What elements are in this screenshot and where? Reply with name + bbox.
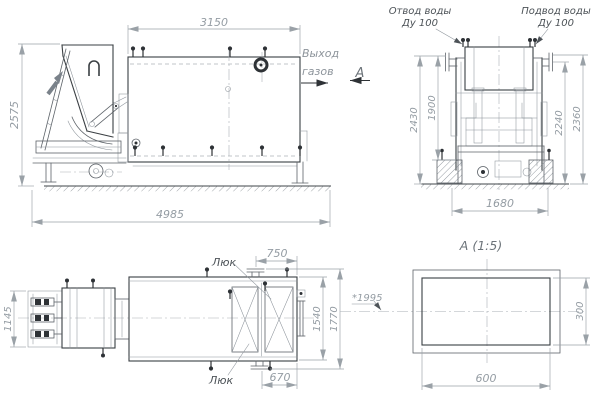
- furnace-assembly-drawing: 3150 2575 4985 Выход газов А: [0, 0, 600, 400]
- dim-1540-text: 1540: [312, 306, 323, 331]
- dim-750-text: 750: [267, 247, 288, 260]
- hatch-cover-left: [232, 287, 258, 352]
- bottom-nozzle-plan: [251, 361, 268, 369]
- water-outlet-callout: Отвод воды Ду 100: [389, 6, 462, 44]
- dim-600-text: 600: [476, 372, 497, 385]
- dim-2430-text: 2430: [409, 107, 420, 132]
- dimension-width-1770: 1770: [266, 269, 344, 369]
- gas-outlet-label-line2: газов: [302, 65, 334, 78]
- tank-bottom-eyebolts: [133, 145, 302, 156]
- hatch-leader-bottom: [228, 344, 249, 375]
- dimension-top-750: 750: [256, 247, 297, 275]
- hopper-symbol: [89, 61, 99, 76]
- ref-1995-text: *1995: [352, 293, 382, 304]
- top-flange-port: [255, 59, 267, 71]
- end-elevation-view: Отвод воды Ду 100 Подвод воды Ду 100 243…: [389, 6, 591, 216]
- dim-2575-text: 2575: [8, 101, 21, 129]
- tank-plan: [129, 267, 305, 370]
- dim-1145-text: 1145: [3, 306, 14, 331]
- side-flange-plan: [297, 290, 305, 336]
- dimension-foundation-1680: 1680: [452, 188, 548, 216]
- top-nozzle-plan: [247, 269, 264, 277]
- side-elevation-view: 3150 2575 4985 Выход газов А: [8, 16, 370, 227]
- technical-drawing-sheet: 3150 2575 4985 Выход газов А: [0, 0, 600, 400]
- dimension-duct-600: 600: [422, 348, 550, 390]
- dim-670-text: 670: [270, 371, 291, 384]
- dimension-overall-length: 4985: [32, 190, 330, 227]
- section-a-title: А (1:5): [459, 238, 502, 253]
- water-inlet-callout: Подвод воды Ду 100: [521, 6, 591, 44]
- tank-body: [128, 50, 300, 170]
- dimension-feeder-1145: 1145: [3, 291, 26, 347]
- view-a-label: А: [355, 66, 365, 81]
- dim-2360-text: 2360: [572, 106, 583, 131]
- dim-1900-text: 1900: [427, 95, 438, 120]
- section-a-view: А (1:5) 600 300: [340, 238, 590, 390]
- dim-300-text: 300: [575, 301, 586, 320]
- dim-4985-text: 4985: [156, 208, 184, 221]
- plan-view: 1145 750 670 1540 1770: [3, 247, 382, 389]
- reference-dimension-1995: *1995: [352, 293, 382, 310]
- water-outlet-leader: [436, 29, 462, 44]
- dim-1680-text: 1680: [486, 197, 514, 210]
- dimension-end-2240: 2240: [553, 62, 569, 184]
- hatch-label-bottom: Люк: [208, 374, 234, 387]
- dim-2240-text: 2240: [554, 110, 565, 135]
- gas-outlet-annotation: Выход газов: [301, 47, 339, 83]
- hatch-callout-bottom: Люк: [208, 344, 249, 387]
- hopper-assembly: [33, 45, 128, 182]
- gas-outlet-label-line1: Выход: [302, 47, 339, 60]
- view-a-direction: А: [350, 66, 370, 81]
- tank-top-eyebolts: [131, 46, 267, 57]
- dimension-tank-length: 3150: [128, 16, 300, 54]
- ground-line-side: [44, 186, 331, 191]
- water-inlet-label-line2: Ду 100: [537, 18, 574, 29]
- dimension-bottom-670: 670: [262, 363, 297, 389]
- dim-1770-text: 1770: [329, 306, 340, 331]
- dimension-overall-height: 2575: [8, 44, 60, 186]
- dim-3150-text: 3150: [200, 16, 228, 29]
- feeder-cylinders: [31, 298, 61, 338]
- dimension-end-1900: 1900: [427, 56, 456, 160]
- water-outlet-label-line2: Ду 100: [401, 18, 438, 29]
- ground-line-end: [421, 184, 569, 189]
- water-inlet-label-line1: Подвод воды: [521, 6, 591, 17]
- water-inlet-leader: [536, 29, 548, 44]
- hatch-cover-right: [265, 287, 293, 352]
- hatch-label-top: Люк: [211, 256, 237, 269]
- water-outlet-label-line1: Отвод воды: [389, 6, 452, 17]
